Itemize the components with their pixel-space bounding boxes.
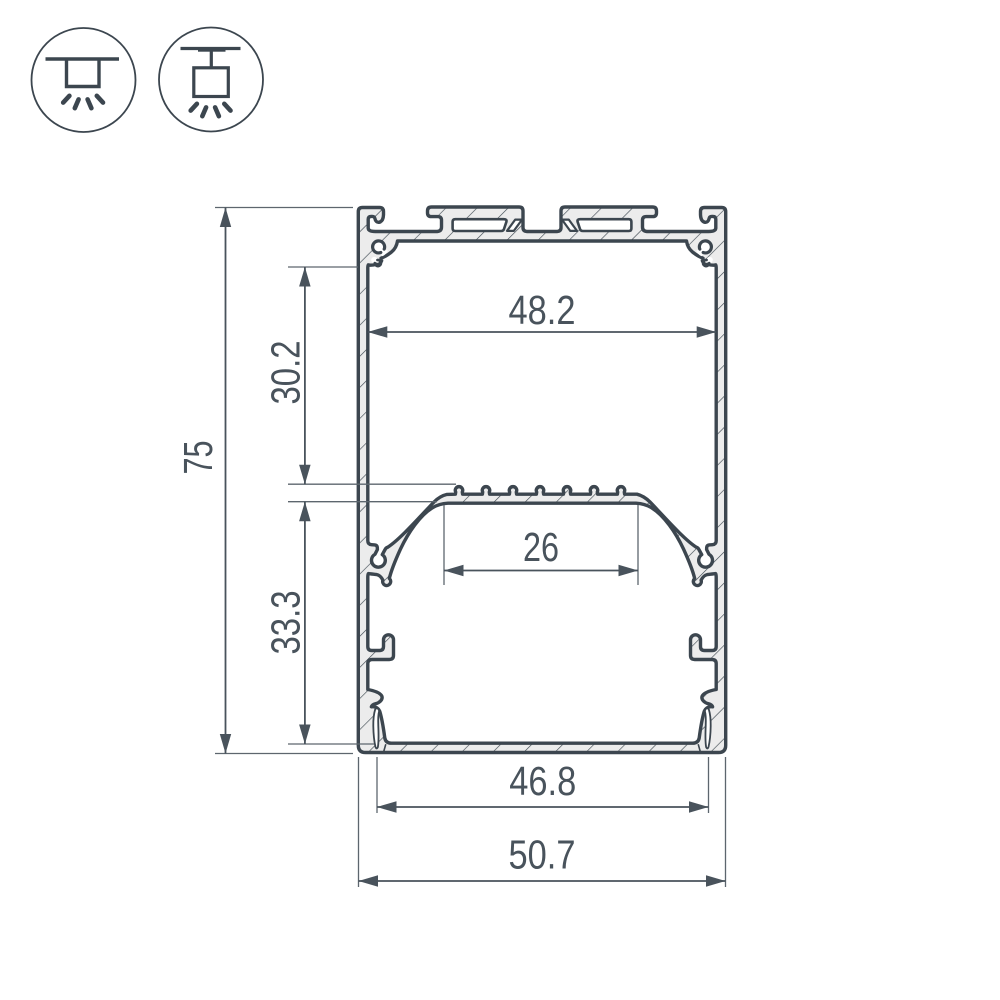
svg-text:26: 26 bbox=[523, 524, 559, 570]
svg-text:30.2: 30.2 bbox=[263, 341, 309, 405]
svg-text:50.7: 50.7 bbox=[509, 832, 576, 878]
svg-text:33.3: 33.3 bbox=[263, 591, 309, 655]
svg-text:46.8: 46.8 bbox=[509, 758, 576, 804]
svg-text:48.2: 48.2 bbox=[509, 287, 576, 333]
svg-text:75: 75 bbox=[175, 441, 221, 475]
